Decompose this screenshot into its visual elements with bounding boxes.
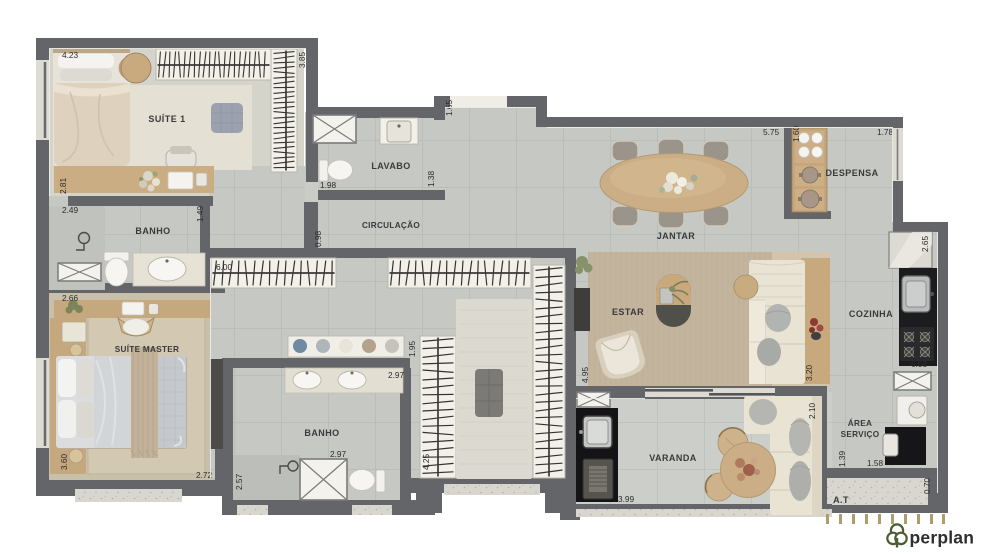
svg-text:1.58: 1.58	[867, 458, 884, 468]
svg-text:SUÍTE MASTER: SUÍTE MASTER	[115, 344, 180, 354]
svg-text:0.98: 0.98	[313, 230, 323, 247]
svg-text:1.49: 1.49	[195, 205, 205, 222]
svg-text:6.00: 6.00	[216, 262, 233, 272]
svg-text:DESPENSA: DESPENSA	[825, 168, 878, 178]
svg-text:ÁREA: ÁREA	[848, 418, 872, 428]
svg-text:BANHO: BANHO	[135, 226, 170, 236]
svg-text:2.81: 2.81	[58, 177, 68, 194]
svg-text:2.65: 2.65	[920, 235, 930, 252]
svg-text:3.85: 3.85	[297, 51, 307, 68]
svg-text:3.99: 3.99	[618, 494, 635, 504]
svg-text:1.95: 1.95	[407, 340, 417, 357]
svg-text:ESTAR: ESTAR	[612, 307, 644, 317]
svg-text:CIRCULAÇÃO: CIRCULAÇÃO	[362, 220, 420, 230]
svg-text:2.66: 2.66	[62, 293, 79, 303]
svg-text:1.39: 1.39	[837, 450, 847, 467]
svg-text:2.97: 2.97	[330, 449, 347, 459]
svg-text:A.T: A.T	[833, 495, 849, 505]
svg-text:2.57: 2.57	[234, 473, 244, 490]
svg-text:2.49: 2.49	[62, 205, 79, 215]
svg-text:6.08: 6.08	[911, 359, 928, 369]
svg-text:SERVIÇO: SERVIÇO	[841, 430, 880, 439]
svg-text:3.60: 3.60	[59, 453, 69, 470]
svg-text:1.98: 1.98	[320, 180, 337, 190]
svg-text:4.23: 4.23	[62, 50, 79, 60]
svg-text:perplan: perplan	[910, 528, 975, 548]
svg-text:5.75: 5.75	[763, 127, 780, 137]
svg-text:BANHO: BANHO	[304, 428, 339, 438]
svg-text:VARANDA: VARANDA	[649, 453, 697, 463]
svg-text:3.20: 3.20	[804, 364, 814, 381]
svg-text:2.10: 2.10	[807, 402, 817, 419]
svg-text:1.78: 1.78	[877, 127, 894, 137]
svg-text:COZINHA: COZINHA	[849, 309, 893, 319]
svg-text:4.25: 4.25	[421, 453, 431, 470]
svg-text:JANTAR: JANTAR	[657, 231, 696, 241]
svg-text:LAVABO: LAVABO	[371, 161, 410, 171]
svg-text:1.38: 1.38	[426, 170, 436, 187]
svg-text:SUÍTE 1: SUÍTE 1	[148, 114, 185, 124]
svg-text:0.70: 0.70	[922, 477, 932, 494]
svg-text:4.95: 4.95	[580, 366, 590, 383]
svg-text:2.97: 2.97	[388, 370, 405, 380]
